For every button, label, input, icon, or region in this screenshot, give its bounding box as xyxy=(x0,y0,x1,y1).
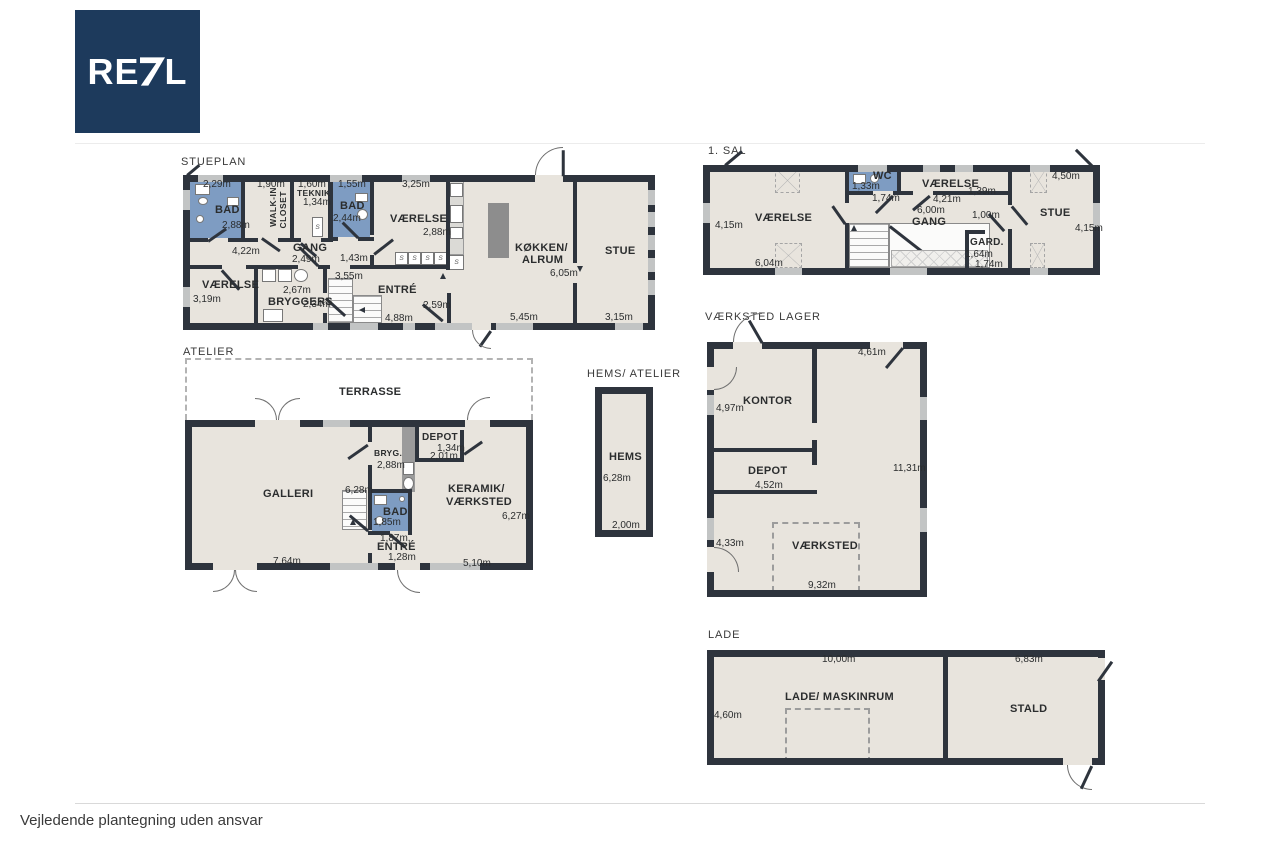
door-leaf xyxy=(348,444,369,460)
door-opening xyxy=(707,547,714,572)
dim-label: 4,33m xyxy=(716,538,744,549)
room-label-vaerksted: VÆRKSTED xyxy=(792,540,858,552)
door-leaf xyxy=(885,347,904,369)
wall xyxy=(350,265,447,269)
dim-label: 2,88m xyxy=(377,460,405,471)
room-label-stue: STUE xyxy=(1040,207,1071,219)
wall xyxy=(707,650,714,765)
window xyxy=(920,508,927,532)
closet-s: S xyxy=(395,252,408,265)
dim-label: 3,15m xyxy=(605,312,633,323)
sink-icon xyxy=(278,269,292,282)
window xyxy=(183,287,190,307)
wall xyxy=(185,420,192,570)
door-opening xyxy=(213,563,257,570)
wall xyxy=(812,349,817,423)
window xyxy=(330,563,378,570)
dim-label: 11,31m xyxy=(893,463,926,474)
door-leaf xyxy=(373,238,393,255)
dim-label: 4,15m xyxy=(715,220,743,231)
logo-a-glyph xyxy=(140,56,165,87)
dim-label: 5,10m xyxy=(463,558,491,569)
wall xyxy=(408,489,412,535)
dim-label: 4,97m xyxy=(716,403,744,414)
room-label-galleri: GALLERI xyxy=(263,488,313,500)
door-opening xyxy=(465,420,490,427)
wall xyxy=(370,182,374,235)
door-opening xyxy=(255,420,300,427)
window xyxy=(350,323,378,330)
stueplan-floorplan: S S S S S S xyxy=(183,175,655,330)
wall xyxy=(897,172,901,191)
room-label-vaerelse: VÆRELSE xyxy=(390,213,447,225)
disclaimer-text: Vejledende plantegning uden ansvar xyxy=(20,812,263,829)
room-label-koekken: KØKKEN/ xyxy=(515,242,568,254)
room-label-kontor: KONTOR xyxy=(743,395,792,407)
dim-label: 1,00m xyxy=(972,210,1000,221)
closet-s: S xyxy=(408,252,421,265)
dim-label: 6,00m xyxy=(917,205,945,216)
wall xyxy=(368,427,372,442)
hems-title: HEMS/ ATELIER xyxy=(587,368,681,380)
window xyxy=(1030,268,1048,275)
kitchen-island xyxy=(488,203,509,258)
door-opening xyxy=(707,367,714,390)
wall xyxy=(812,440,817,465)
lade-title: LADE xyxy=(708,629,740,641)
window xyxy=(648,258,655,272)
dim-label: 6,28m xyxy=(603,473,631,484)
room-label-gang: GANG xyxy=(293,242,327,254)
dim-label: 1,85m xyxy=(373,517,401,528)
room-label-hems: HEMS xyxy=(609,451,642,463)
window xyxy=(435,323,473,330)
real-logo: RE L xyxy=(75,10,200,133)
room-label-bad: BAD xyxy=(340,200,365,212)
room-label-stald: STALD xyxy=(1010,703,1047,715)
door-swing-arc xyxy=(235,570,257,592)
dim-label: 1,33m xyxy=(852,181,880,192)
logo-text-l: L xyxy=(165,51,188,93)
dim-label: 4,61m xyxy=(858,347,886,358)
door-swing-arc xyxy=(714,367,737,390)
vaerksted-title: VÆRKSTED LAGER xyxy=(705,311,821,323)
wall xyxy=(241,182,245,242)
window xyxy=(703,203,710,223)
skylight-icon xyxy=(1030,243,1045,268)
dim-label: 2,67m xyxy=(283,285,311,296)
dim-label: 6,28m xyxy=(345,485,373,496)
window xyxy=(323,420,350,427)
wall xyxy=(358,237,374,241)
vaerksted-floorplan: 4,61m KONTOR 4,97m DEPOT 4,52m 11,31m 4,… xyxy=(707,342,927,597)
wall xyxy=(707,758,1105,765)
shower-icon xyxy=(196,215,204,223)
room-label-bryg: BRYG. xyxy=(374,448,402,458)
wall xyxy=(573,283,577,323)
room-label-terrasse: TERRASSE xyxy=(339,386,401,398)
closet-s: S xyxy=(421,252,434,265)
logo-text-re: RE xyxy=(87,51,139,93)
wall xyxy=(190,238,208,242)
window xyxy=(496,323,533,330)
staircase xyxy=(353,295,382,323)
dim-label: 2,44m xyxy=(333,213,361,224)
door-swing-arc xyxy=(535,147,563,175)
dim-label: 1,28m xyxy=(388,552,416,563)
door-leaf xyxy=(831,206,846,225)
door-opening xyxy=(472,323,491,330)
wall xyxy=(368,489,412,493)
window xyxy=(707,395,714,415)
wall xyxy=(943,650,948,765)
shower-icon xyxy=(399,496,405,502)
room-label-koekken: ALRUM xyxy=(522,254,563,266)
window xyxy=(775,268,802,275)
dim-label: 1,74m xyxy=(872,193,900,204)
room-label-walkin: WALK-IN xyxy=(268,187,278,227)
window xyxy=(648,235,655,250)
window xyxy=(920,397,927,420)
door-opening xyxy=(733,342,762,349)
dim-label: 1,55m xyxy=(338,179,366,190)
wall xyxy=(714,448,817,452)
dim-label: 4,60m xyxy=(714,710,742,721)
window xyxy=(890,268,927,275)
closet-s: S xyxy=(312,217,323,237)
toilet-icon xyxy=(374,495,387,505)
dim-label: 6,05m xyxy=(550,268,578,279)
footer-divider xyxy=(75,803,1205,804)
wall xyxy=(1008,229,1012,268)
sal1-floorplan: VÆRELSE 4,15m 6,04m WC 1,33m 1,74m VÆREL… xyxy=(703,165,1100,275)
dim-label: 9,32m xyxy=(808,580,836,591)
dim-label: 1,74m xyxy=(975,259,1003,270)
dim-label: 2,88m xyxy=(423,227,451,238)
maskinrum-outline xyxy=(785,708,870,763)
window xyxy=(183,190,190,210)
dim-label: 3,55m xyxy=(335,271,363,282)
dim-label: 4,52m xyxy=(755,480,783,491)
floorplan-page: RE L STUEPLAN 1. SAL ATELIER HEMS/ ATELI… xyxy=(0,0,1280,853)
door-direction-arrow xyxy=(577,266,583,272)
dim-label: 4,88m xyxy=(385,313,413,324)
room-label-keramik: VÆRKSTED xyxy=(446,496,512,508)
washer-icon xyxy=(294,269,308,282)
stair-direction-arrow xyxy=(359,307,365,313)
door-swing-arc xyxy=(397,570,420,593)
wall xyxy=(290,182,294,242)
wall xyxy=(415,427,419,462)
room-label-depot: DEPOT xyxy=(748,465,787,477)
wall xyxy=(595,530,653,537)
dim-label: 5,45m xyxy=(510,312,538,323)
wall xyxy=(1008,172,1012,205)
room-label-walkin: CLOSET xyxy=(278,191,288,228)
window xyxy=(403,323,415,330)
wall xyxy=(190,265,222,269)
room-label-vaerelse: VÆRELSE xyxy=(202,279,259,291)
door-swing-arc xyxy=(472,330,491,349)
window xyxy=(313,323,328,330)
dim-label: 7,64m xyxy=(273,556,301,567)
wall xyxy=(254,269,258,323)
dim-label: 2,49m xyxy=(292,254,320,265)
dim-label: 2,34m xyxy=(303,299,331,310)
wall xyxy=(228,238,258,242)
wall xyxy=(526,420,533,570)
dim-label: 1,34m xyxy=(303,197,331,208)
door-direction-arrow xyxy=(440,273,446,279)
wall xyxy=(707,650,1105,657)
room-label-keramik: KERAMIK/ xyxy=(448,483,505,495)
cooktop-icon xyxy=(450,205,463,223)
window xyxy=(1030,165,1050,172)
wall xyxy=(323,313,327,323)
room-label-gang: GANG xyxy=(912,216,946,228)
stair-direction-arrow xyxy=(851,225,857,231)
door-opening xyxy=(1063,758,1092,765)
door-leaf xyxy=(463,441,482,456)
dim-label: 6,27m xyxy=(502,511,530,522)
room-label-lade: LADE/ MASKINRUM xyxy=(785,691,894,703)
wall xyxy=(595,387,602,537)
room-label-vaerelse: VÆRELSE xyxy=(755,212,812,224)
window xyxy=(955,165,973,172)
dim-label: 4,22m xyxy=(232,246,260,257)
dim-label: 2,59m xyxy=(423,300,451,311)
dim-label: 3,25m xyxy=(402,179,430,190)
sink-icon xyxy=(450,183,463,197)
room-label-depot: DEPOT xyxy=(422,432,458,443)
toilet-icon xyxy=(198,197,208,205)
dim-label: 2,01m xyxy=(430,451,458,462)
dim-label: 10,00m xyxy=(822,654,855,665)
wall xyxy=(965,230,985,234)
door-opening xyxy=(535,175,563,182)
dim-label: 4,50m xyxy=(1052,171,1080,182)
dim-label: 2,00m xyxy=(612,520,640,531)
dim-label: 4,15m xyxy=(1075,223,1103,234)
door-swing-arc xyxy=(714,547,739,572)
room-label-bad: BAD xyxy=(215,204,240,216)
window xyxy=(648,280,655,295)
room-label-gard: GARD. xyxy=(970,237,1004,248)
oven-icon xyxy=(450,227,463,239)
wall xyxy=(323,269,327,293)
dim-label: 4,21m xyxy=(933,194,961,205)
atelier-floorplan: GALLERI 7,64m 6,28m BRYG. 2,88m DEPOT 1,… xyxy=(185,420,533,570)
dim-label: 2,29m xyxy=(203,179,231,190)
dim-label: 6,04m xyxy=(755,258,783,269)
atelier-title: ATELIER xyxy=(183,346,234,358)
wall xyxy=(845,223,849,268)
closet-s: S xyxy=(449,255,464,270)
dim-label: 3,19m xyxy=(193,294,221,305)
cabinet-icon xyxy=(262,269,276,282)
wall xyxy=(368,553,372,563)
dim-label: 6,83m xyxy=(1015,654,1043,665)
room-label-stue: STUE xyxy=(605,245,636,257)
wall xyxy=(328,177,333,241)
wall xyxy=(707,590,927,597)
dim-label: 1,39m xyxy=(968,186,996,197)
header-divider xyxy=(75,143,1205,144)
lade-floorplan: 10,00m 6,83m LADE/ MASKINRUM 4,60m STALD xyxy=(707,650,1105,765)
stueplan-title: STUEPLAN xyxy=(181,156,246,168)
wall xyxy=(368,465,372,530)
hems-floorplan: HEMS 6,28m 2,00m xyxy=(595,387,653,537)
wall xyxy=(183,323,655,330)
window xyxy=(707,518,714,540)
door-leaf xyxy=(1011,205,1028,225)
dim-label: 2,88m xyxy=(222,220,250,231)
window xyxy=(615,323,643,330)
wall xyxy=(278,238,294,242)
window xyxy=(648,190,655,205)
wall xyxy=(845,172,849,203)
window xyxy=(648,212,655,227)
freezer-icon xyxy=(263,309,283,322)
door-opening xyxy=(395,563,420,570)
wall xyxy=(330,237,338,241)
wall xyxy=(595,387,653,394)
window xyxy=(923,165,940,172)
door-swing-arc xyxy=(213,570,235,592)
wall xyxy=(646,387,653,537)
dim-label: 1,43m xyxy=(340,253,368,264)
wall xyxy=(573,182,577,263)
room-label-entre: ENTRÉ xyxy=(378,284,417,296)
